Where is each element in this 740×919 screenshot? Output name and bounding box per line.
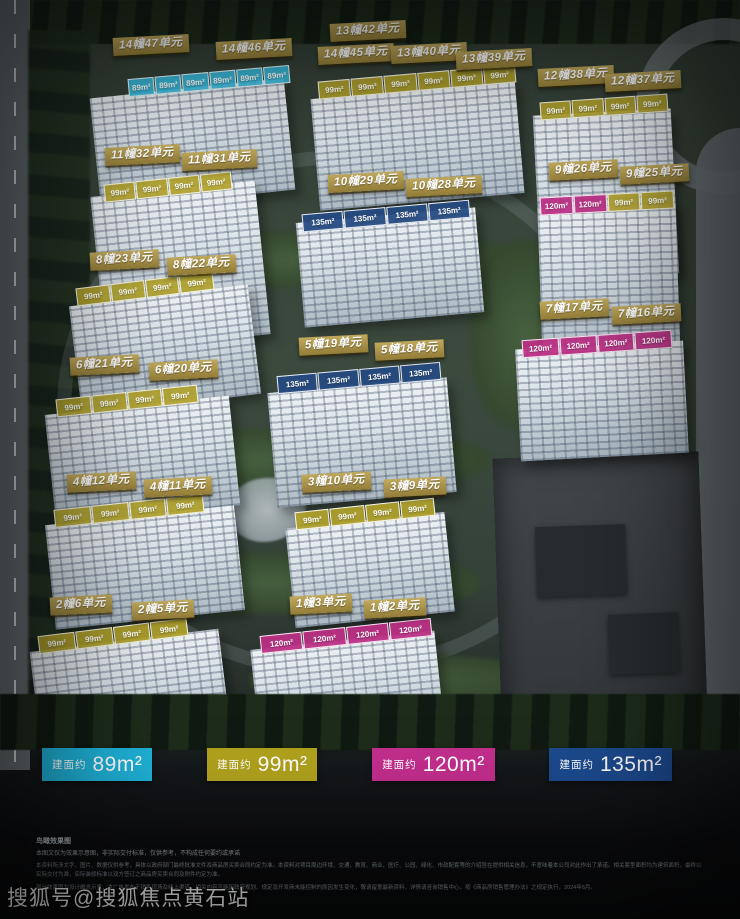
unit-area-chip: 99m²	[636, 94, 668, 114]
legend-prefix: 建面约	[217, 757, 252, 772]
unit-area-chip: 89m²	[128, 77, 156, 97]
building-unit-label: 5幢19单元	[299, 334, 369, 356]
unit-area-chip: 135m²	[400, 362, 442, 383]
unit-area-chip: 135m²	[277, 373, 319, 394]
unit-area-chip: 89m²	[209, 70, 237, 90]
unit-area-chip: 99m²	[318, 79, 352, 100]
legend-area-value: 135m²	[600, 753, 662, 777]
building-unit-label: 14幢45单元	[318, 43, 394, 65]
legend-item-99: 建面约 99m²	[207, 748, 317, 781]
building-unit-label: 2幢5单元	[132, 599, 195, 620]
unit-area-chip: 89m²	[263, 65, 291, 85]
legend-prefix: 建面约	[559, 757, 594, 772]
unit-area-chip: 120m²	[573, 194, 607, 214]
building-unit-label: 3幢10单元	[302, 471, 372, 493]
building-unit-label: 14幢47单元	[113, 34, 189, 56]
legend-item-120: 建面约 120m²	[372, 748, 495, 781]
unit-area-chip: 99m²	[135, 178, 168, 199]
aerial-rendering: 89m² 89m² 89m² 89m² 89m² 89m² 99m² 99m² …	[0, 0, 740, 919]
unit-area-chip: 135m²	[318, 369, 360, 390]
legend-area-value: 89m²	[93, 753, 143, 777]
unit-area-chip: 89m²	[236, 67, 264, 87]
unit-area-chip: 135m²	[359, 365, 401, 386]
unit-area-chip: 99m²	[329, 505, 365, 526]
legend-item-89: 建面约 89m²	[42, 748, 152, 781]
unit-area-chip: 99m²	[162, 385, 198, 407]
disclaimer-paragraph: 本资料所涉文字、图片、数据仅供参考，具体以政府部门最终批准文件及商品房买卖合同约…	[36, 862, 704, 881]
unit-area-chip: 135m²	[344, 207, 387, 229]
unit-area-chip: 99m²	[572, 98, 604, 118]
disclaimer-title: 鸟瞰效果图	[36, 836, 704, 846]
building-unit-label: 9幢25单元	[620, 163, 690, 185]
unit-area-chip: 135m²	[302, 211, 345, 233]
unit-area-chip: 99m²	[200, 171, 233, 192]
unit-area-chip: 99m²	[127, 388, 163, 410]
unit-area-chip: 99m²	[604, 96, 636, 116]
unit-area-chip: 99m²	[607, 192, 641, 212]
plaza-building	[535, 524, 627, 597]
south-east-plaza	[492, 451, 707, 720]
unit-area-chip: 99m²	[168, 175, 201, 196]
legend-prefix: 建面约	[52, 757, 87, 772]
building-unit-label: 2幢6单元	[50, 594, 113, 615]
unit-area-chip: 99m²	[540, 100, 572, 120]
building-unit-label: 4幢12单元	[67, 471, 137, 493]
unit-area-chip: 120m²	[522, 338, 560, 359]
unit-area-chip: 135m²	[386, 203, 429, 225]
legend-item-135: 建面约 135m²	[549, 748, 672, 781]
unit-area-chip: 135m²	[428, 200, 471, 222]
disclaimer-line: 本图文仅为效果示意图，非实际交付标准，仅供参考，不构成任何要约或承诺	[36, 848, 704, 857]
area-legend: 建面约 89m² 建面约 99m² 建面约 120m² 建面约 135m²	[42, 748, 672, 781]
unit-area-chip: 120m²	[635, 330, 673, 351]
building-unit-label: 9幢26单元	[549, 159, 619, 181]
unit-area-chip: 99m²	[129, 498, 167, 520]
building-unit-label: 1幢2单元	[364, 597, 427, 618]
unit-area-chip: 89m²	[182, 72, 210, 92]
building-unit-label: 12幢38单元	[538, 65, 614, 87]
legend-area-value: 120m²	[423, 753, 485, 777]
unit-area-chip: 120m²	[597, 332, 635, 353]
building-unit-label: 14幢46单元	[216, 38, 292, 60]
unit-area-chip: 99m²	[450, 67, 484, 88]
building-unit-label: 5幢18单元	[375, 339, 445, 361]
unit-area-chip: 99m²	[384, 73, 418, 94]
building-unit-label: 3幢9单元	[384, 476, 447, 497]
unit-area-chip: 120m²	[559, 335, 597, 356]
unit-area-chip: 99m²	[351, 76, 385, 97]
building-unit-label: 1幢3单元	[290, 593, 353, 614]
unit-area-chip: 99m²	[365, 501, 401, 522]
unit-area-chip: 99m²	[53, 506, 91, 528]
legend-area-value: 99m²	[258, 753, 308, 777]
unit-area-chip: 120m²	[540, 196, 574, 216]
road-left	[0, 0, 30, 770]
building-unit-label: 8幢22单元	[167, 254, 237, 276]
building-unit-label: 8幢23单元	[90, 249, 160, 271]
unit-area-chip: 99m²	[91, 502, 129, 524]
watermark-text: 搜狐号@搜狐焦点黄石站	[7, 882, 249, 912]
building-block-7	[515, 341, 689, 462]
unit-area-chip: 99m²	[641, 191, 675, 211]
unit-area-chip: 99m²	[103, 181, 136, 202]
plaza-building	[608, 612, 680, 674]
building-unit-label: 6幢20单元	[149, 359, 219, 381]
unit-area-chip: 89m²	[155, 74, 183, 94]
unit-area-chip: 99m²	[91, 392, 127, 414]
building-unit-label: 4幢11单元	[144, 476, 213, 498]
legend-prefix: 建面约	[382, 757, 417, 772]
unit-area-chip: 99m²	[55, 396, 91, 418]
building-unit-label: 6幢21单元	[70, 354, 140, 376]
unit-area-chip: 99m²	[166, 494, 204, 516]
unit-area-chip: 99m²	[417, 70, 451, 91]
building-unit-label: 7幢16单元	[612, 303, 682, 325]
building-unit-label: 13幢39单元	[456, 48, 532, 70]
tree-row-bottom	[0, 694, 740, 750]
unit-area-chip: 99m²	[400, 498, 436, 519]
building-unit-label: 7幢17单元	[540, 298, 610, 320]
unit-area-chip: 99m²	[294, 509, 330, 530]
